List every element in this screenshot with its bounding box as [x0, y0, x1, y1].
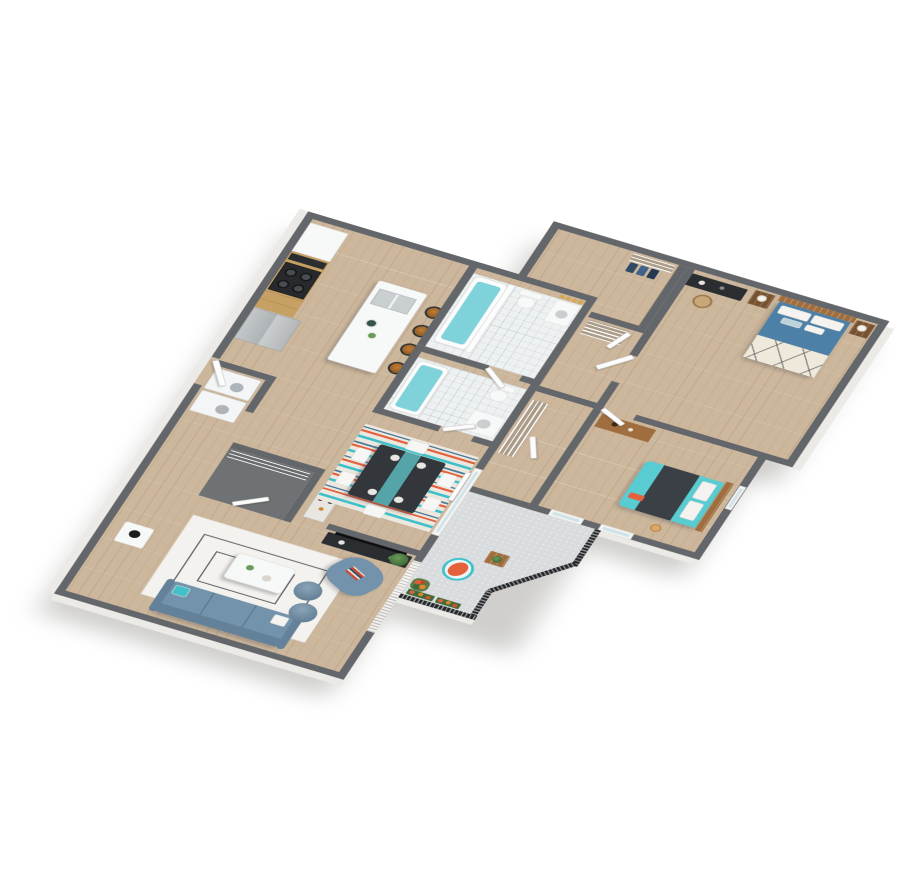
hall-closet-door	[529, 436, 537, 458]
apartment-plan	[51, 159, 890, 762]
floorplan-render	[0, 0, 900, 896]
